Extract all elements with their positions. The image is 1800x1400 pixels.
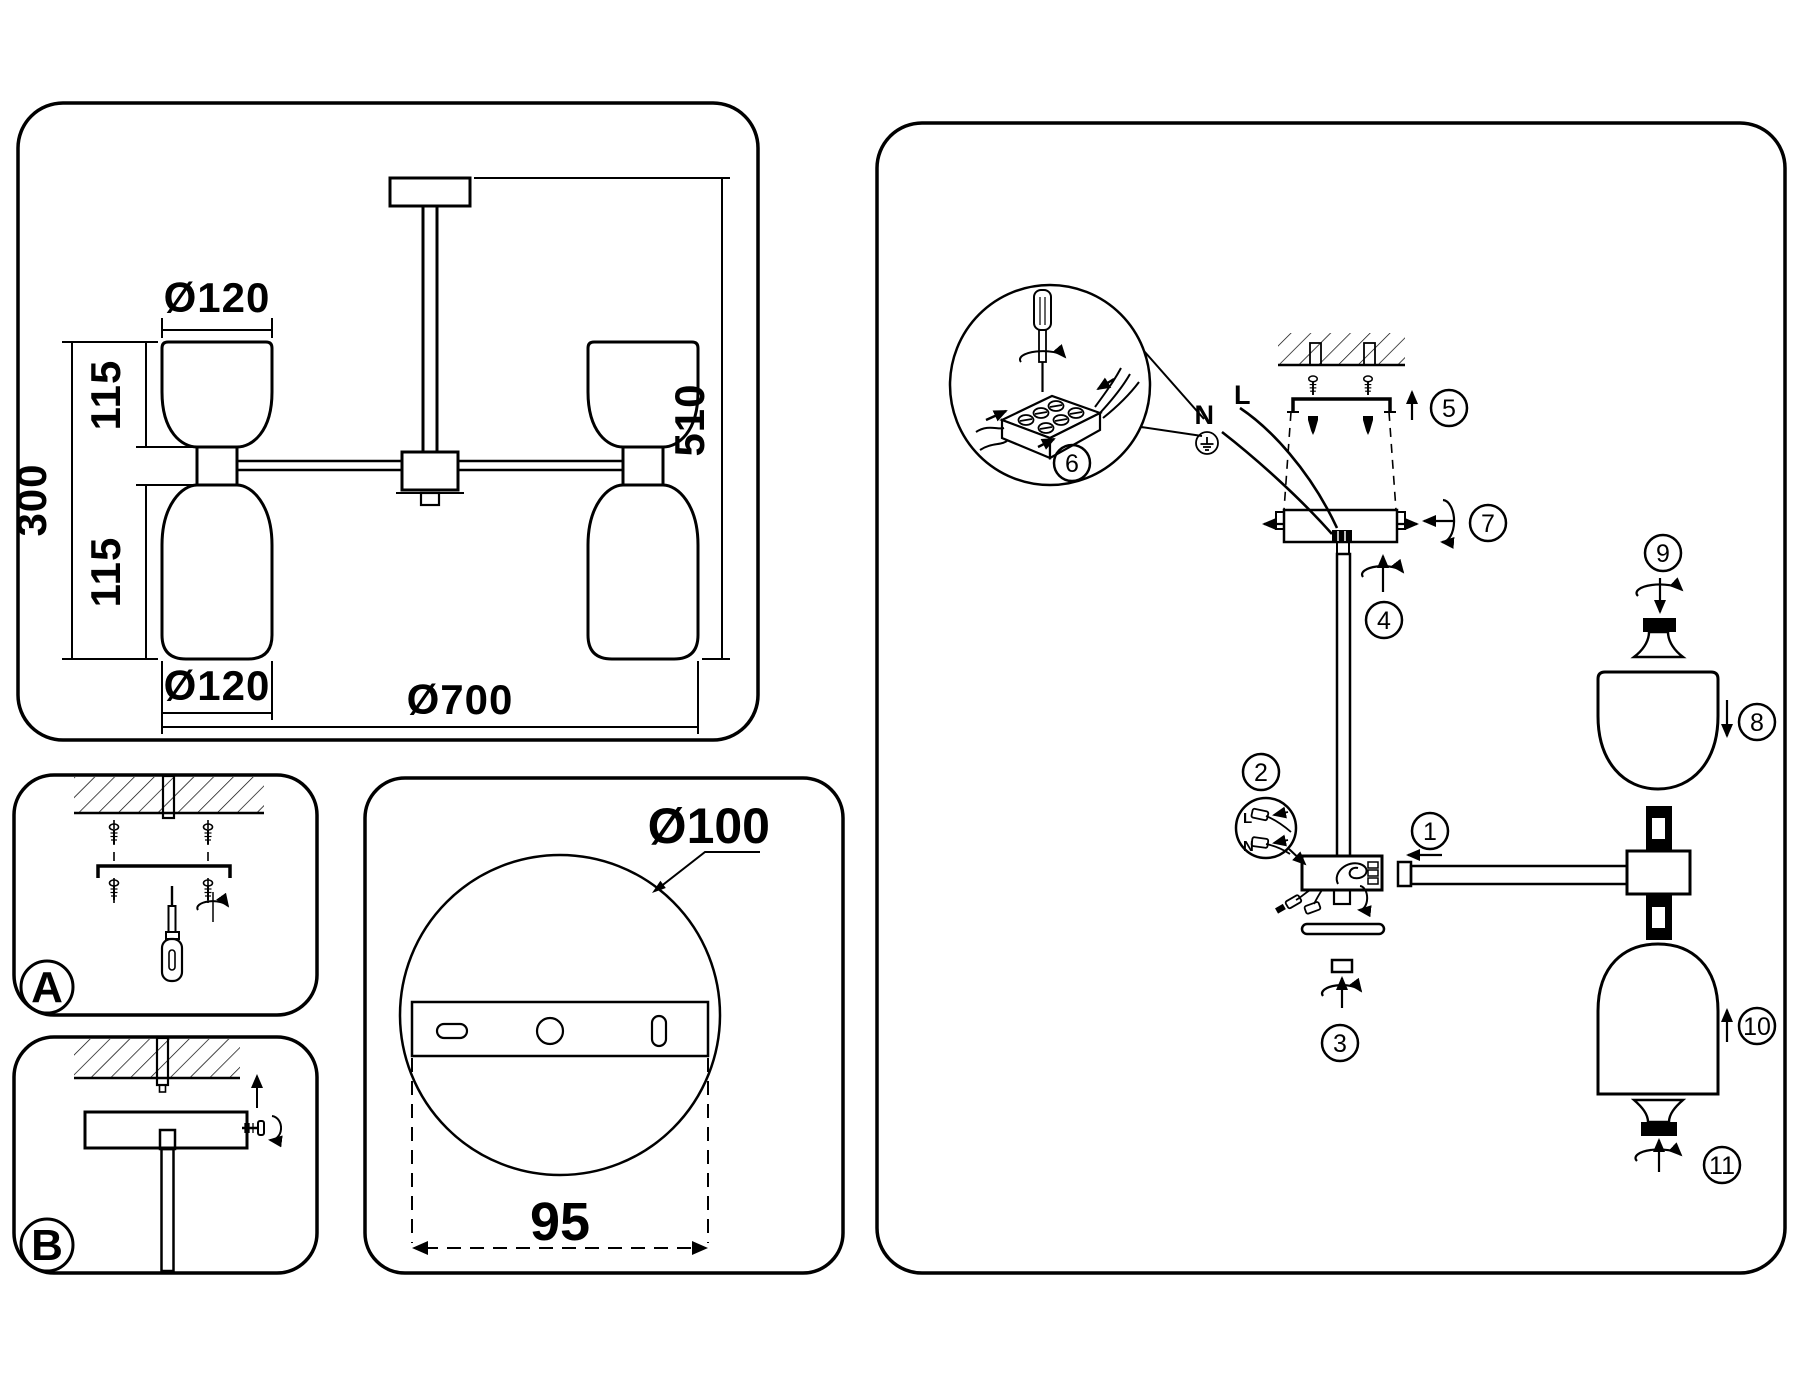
terminal-block [1002,396,1100,458]
threaded-tube-lower [1646,894,1672,940]
dimension-lines [62,178,730,734]
dim-canopy-diameter: Ø100 [648,798,770,854]
step-1-label: 1 [1423,818,1437,846]
dim-shade-lower-height: 115 [82,537,129,608]
threaded-tube-upper [1646,806,1672,851]
manual-page: Ø120 115 300 115 Ø120 Ø700 510 A [0,0,1800,1400]
plug-detail-circle: L N [1236,798,1305,864]
socket-ring-upper [1634,618,1683,657]
canopy-bracket-bar [412,1002,708,1056]
ceiling-hatch-assembly [1278,333,1405,365]
step-11-label: 11 [1709,1152,1735,1180]
anchor-down-icon [1363,416,1373,435]
screwdriver-icon [1020,290,1065,392]
center-hub-assembly [1302,856,1382,890]
socket-ring-lower [1634,1100,1683,1136]
hub-nub-assembly [1334,890,1350,904]
center-hole [537,1018,563,1044]
ceiling-hatch-a [74,777,264,813]
dim-shade-top-diameter: Ø120 [164,274,271,321]
mounting-bracket-a [98,866,230,878]
panel-canopy-frame [365,778,843,1273]
dim-arrowhead [692,1241,708,1255]
step-8-label: 8 [1750,709,1764,737]
arm-left [237,461,402,470]
panel-dimensions-frame [18,103,758,740]
diagram-canvas: Ø120 115 300 115 Ø120 Ø700 510 A [0,0,1800,1400]
right-lower-shade [588,485,698,659]
panel-mount-b: B [14,1037,317,1273]
panel-assembly: 5 7 N L [877,123,1785,1273]
center-hub [402,452,458,490]
dim-fixture-diameter: Ø700 [407,676,514,723]
option-a-label: A [31,963,63,1012]
lamp-hub-block [1627,851,1690,894]
fixture-front-view [162,178,698,659]
left-socket [197,447,237,485]
dim-arrowhead [412,1241,428,1255]
label-line: L [1234,380,1251,410]
dim-shades-total-height: 300 [8,463,55,536]
leader-line [655,852,760,891]
panel-dimensions: Ø120 115 300 115 Ø120 Ø700 510 [8,103,758,740]
hanging-plugs [1275,890,1322,914]
coiled-wire [1337,863,1367,884]
canopy-circle [400,855,720,1175]
step-5-label: 5 [1442,395,1456,423]
canopy-guide-lines [1284,412,1396,510]
lower-shade-assembly [1598,944,1718,1094]
down-rod-assembly [1337,554,1350,856]
step-7-label: 7 [1481,510,1495,538]
step-6-label: 6 [1065,450,1079,478]
down-rod [423,206,437,452]
rotate-arrow-icon [270,1116,281,1140]
detail-line-label: L [1243,810,1252,827]
rod-b [162,1149,174,1271]
upper-shade-assembly [1598,672,1718,789]
rotate-arrow-icon [197,892,228,922]
dim-shade-upper-height: 115 [82,360,129,431]
wire-grommet [1332,530,1352,542]
cover-plate [1302,924,1384,934]
left-upper-shade [162,342,272,447]
mounting-bracket [1293,399,1390,412]
arm-tube [1411,866,1627,884]
anchor-down-icon [1308,416,1318,435]
slot-horizontal [437,1024,467,1038]
step-2-label: 2 [1254,759,1268,787]
ceiling-canopy [390,178,470,206]
lock-piece [1332,960,1352,972]
right-socket [623,447,663,485]
dim-shade-bottom-diameter: Ø120 [164,662,271,709]
left-lower-shade [162,485,272,659]
panel-mount-a: A [14,775,317,1015]
screwdriver-icon [162,886,182,981]
step-10-label: 10 [1743,1013,1771,1041]
label-neutral: N [1195,400,1215,430]
plate-nub [160,1130,175,1149]
step-4-label: 4 [1377,607,1391,635]
slot-vertical [652,1016,666,1046]
bracket-screw-icon [1309,376,1318,395]
cup-nub [1337,542,1349,554]
terminal-detail-circle: 6 [950,285,1204,485]
arm-end-cap [1398,862,1411,886]
option-b-label: B [31,1221,63,1270]
arm-right [458,461,623,470]
hub-connector-stack [1368,862,1378,884]
hub-nub [421,493,439,505]
step-3-label: 3 [1333,1030,1347,1058]
drill-guide-lines [114,820,208,904]
panel-canopy-detail: Ø100 95 [365,778,843,1273]
step-9-label: 9 [1656,540,1670,568]
dim-fixture-height: 510 [666,383,713,456]
bracket-screw-icon [1364,376,1373,395]
dim-mount-hole-spacing: 95 [530,1192,590,1252]
rotate-arrow-icon [1020,351,1065,362]
